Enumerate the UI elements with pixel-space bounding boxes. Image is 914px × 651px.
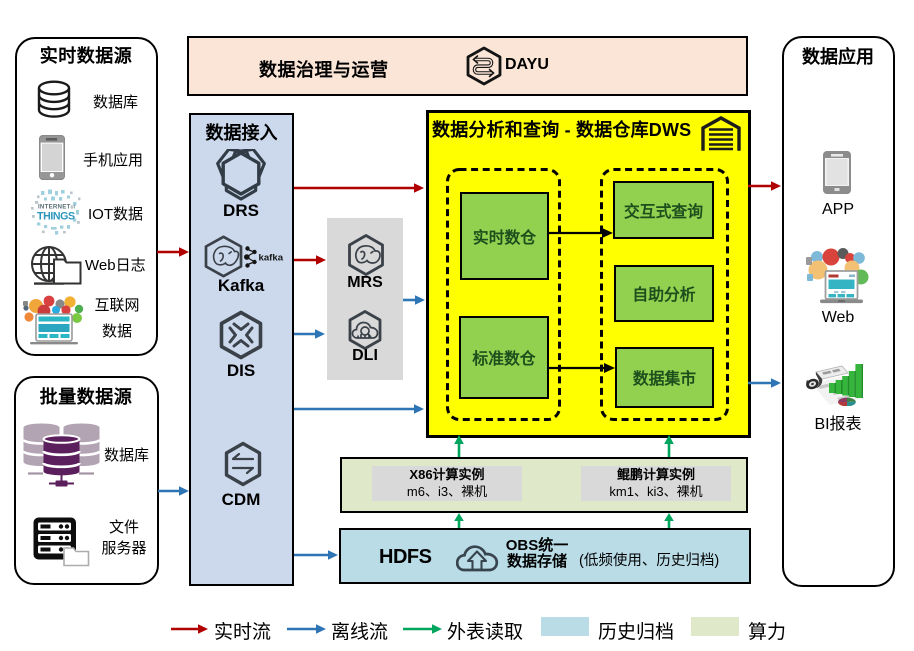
svg-text:INTERNETof: INTERNETof	[38, 204, 76, 211]
svg-text:kafka: kafka	[259, 253, 284, 264]
svg-text:THINGS: THINGS	[37, 211, 75, 223]
